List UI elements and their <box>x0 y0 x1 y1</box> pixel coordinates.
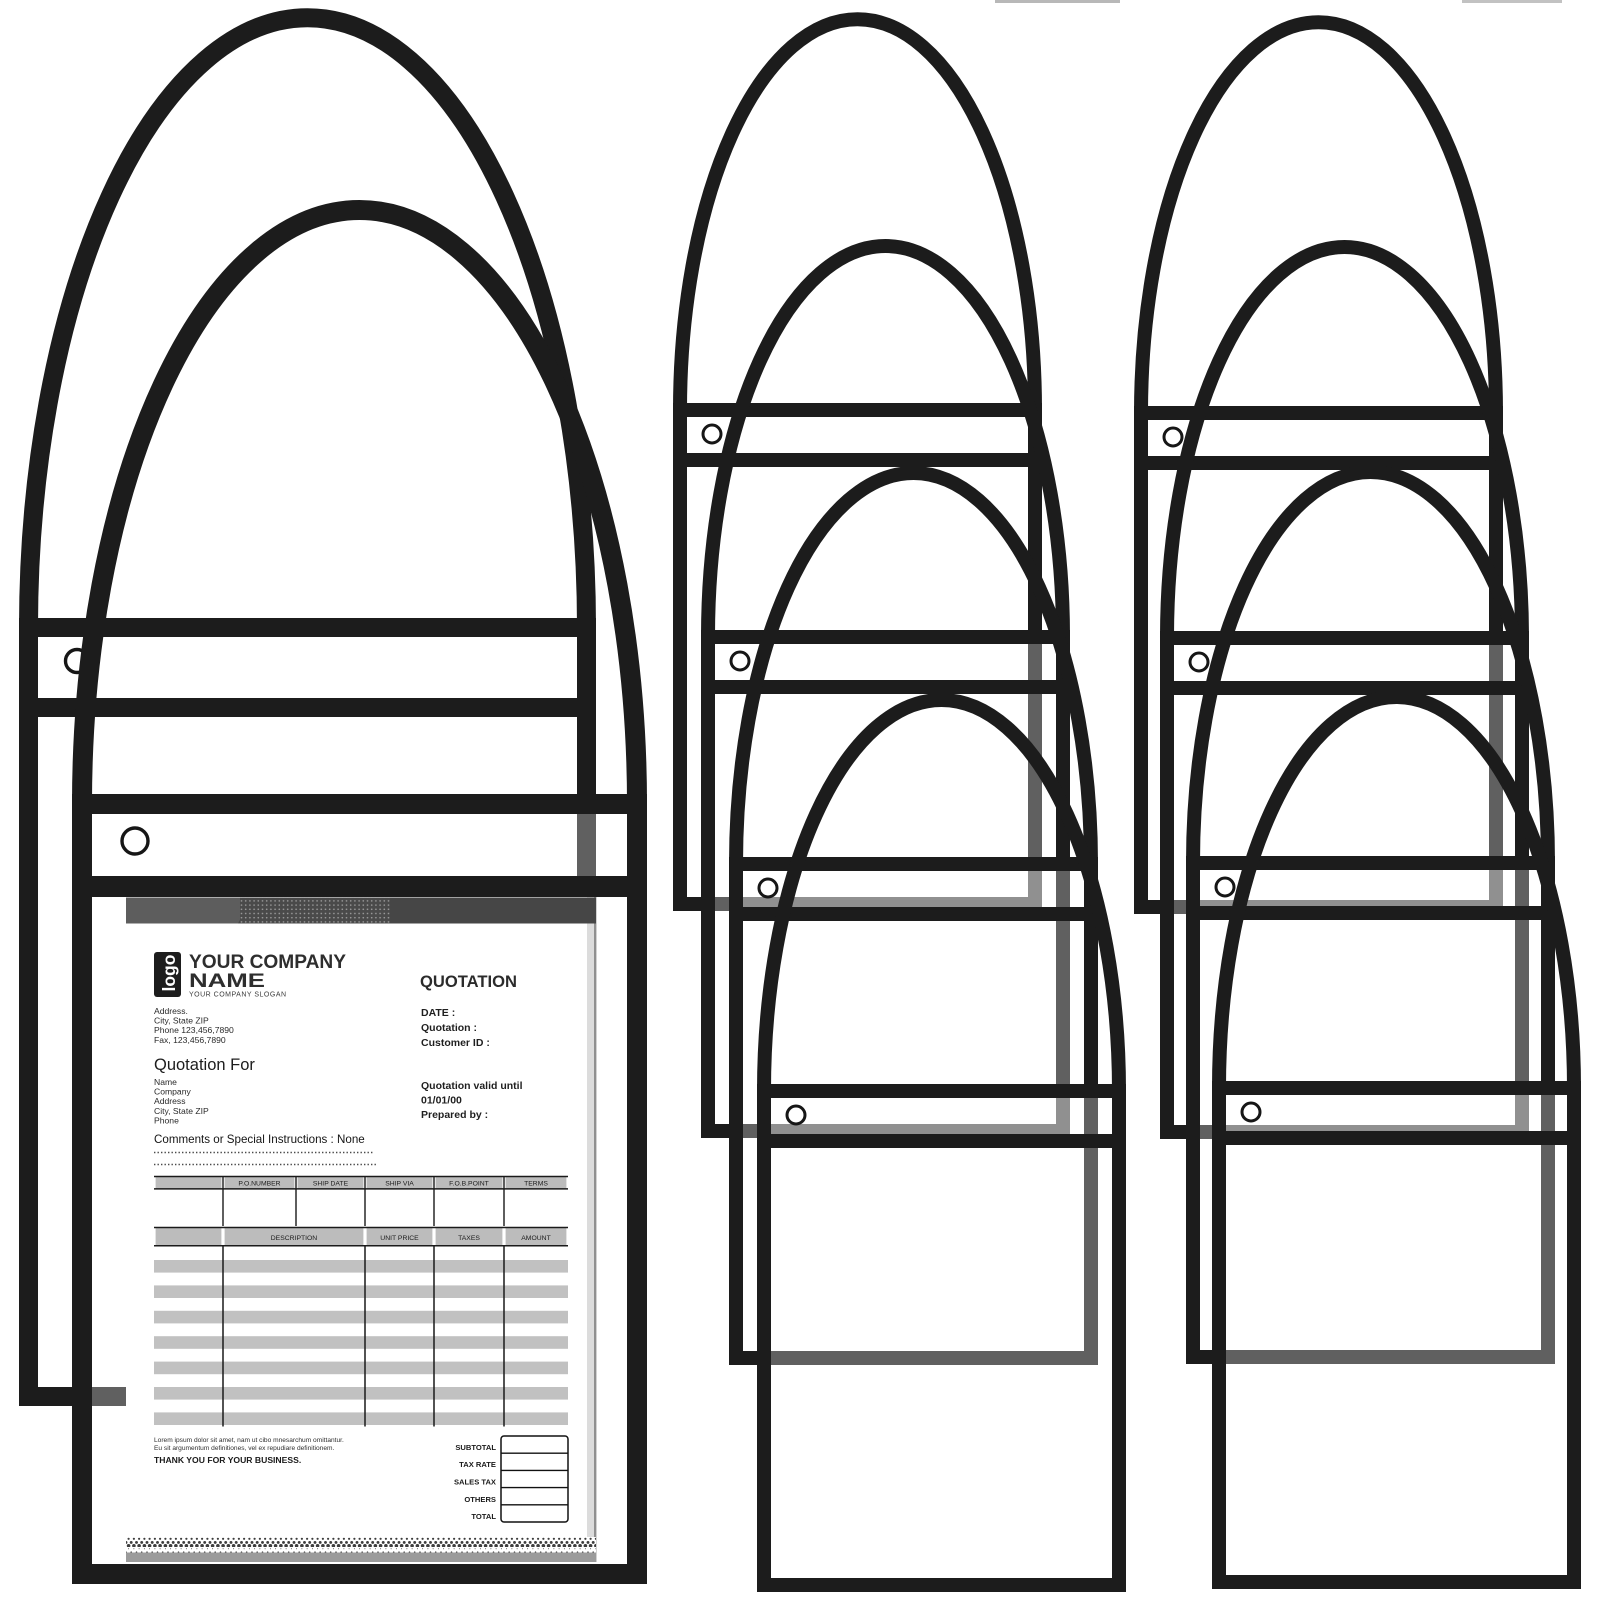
svg-text:SHIP VIA: SHIP VIA <box>385 1181 414 1188</box>
svg-text:AMOUNT: AMOUNT <box>521 1235 550 1242</box>
svg-text:01/01/00: 01/01/00 <box>421 1095 462 1107</box>
svg-text:Eu sit argumentum definitiones: Eu sit argumentum definitiones, vel ex r… <box>154 1445 334 1452</box>
svg-text:YOUR COMPANY: YOUR COMPANY <box>189 952 346 973</box>
svg-text:Phone 123,456,7890: Phone 123,456,7890 <box>154 1025 234 1035</box>
svg-text:Comments or Special Instructio: Comments or Special Instructions : None <box>154 1133 365 1146</box>
svg-text:Customer ID :: Customer ID : <box>421 1037 490 1049</box>
svg-text:F.O.B.POINT: F.O.B.POINT <box>449 1181 489 1188</box>
svg-text:City, State ZIP: City, State ZIP <box>154 1016 209 1026</box>
svg-text:Address: Address <box>154 1096 186 1106</box>
svg-text:SHIP DATE: SHIP DATE <box>313 1181 349 1188</box>
svg-text:Quotation :: Quotation : <box>421 1022 477 1034</box>
svg-text:Address.: Address. <box>154 1006 188 1016</box>
svg-text:NAME: NAME <box>189 971 265 992</box>
svg-text:OTHERS: OTHERS <box>464 1495 496 1504</box>
svg-text:P.O.NUMBER: P.O.NUMBER <box>238 1181 280 1188</box>
svg-text:TERMS: TERMS <box>524 1181 548 1188</box>
svg-text:Name: Name <box>154 1077 177 1087</box>
svg-text:UNIT PRICE: UNIT PRICE <box>380 1235 419 1242</box>
svg-text:Quotation For: Quotation For <box>154 1056 255 1074</box>
svg-text:YOUR COMPANY SLOGAN: YOUR COMPANY SLOGAN <box>189 992 287 999</box>
svg-text:City, State ZIP: City, State ZIP <box>154 1106 209 1116</box>
svg-text:Phone: Phone <box>154 1115 179 1125</box>
svg-text:QUOTATION: QUOTATION <box>420 973 517 991</box>
svg-text:Lorem ipsum dolor sit amet, na: Lorem ipsum dolor sit amet, nam ut cibo … <box>154 1437 344 1444</box>
svg-text:Quotation valid until: Quotation valid until <box>421 1080 523 1092</box>
svg-text:SUBTOTAL: SUBTOTAL <box>455 1443 496 1452</box>
svg-text:THANK YOU FOR YOUR BUSINESS.: THANK YOU FOR YOUR BUSINESS. <box>154 1455 301 1465</box>
svg-text:Prepared by :: Prepared by : <box>421 1109 488 1121</box>
svg-text:TAXES: TAXES <box>458 1235 480 1242</box>
svg-text:logo: logo <box>159 955 179 992</box>
svg-text:DATE :: DATE : <box>421 1007 455 1019</box>
svg-text:TAX RATE: TAX RATE <box>459 1460 496 1469</box>
svg-text:Fax, 123,456,7890: Fax, 123,456,7890 <box>154 1035 226 1045</box>
svg-text:SALES TAX: SALES TAX <box>454 1478 496 1487</box>
svg-text:TOTAL: TOTAL <box>471 1512 496 1521</box>
svg-text:DESCRIPTION: DESCRIPTION <box>271 1235 318 1242</box>
svg-text:Company: Company <box>154 1087 191 1097</box>
